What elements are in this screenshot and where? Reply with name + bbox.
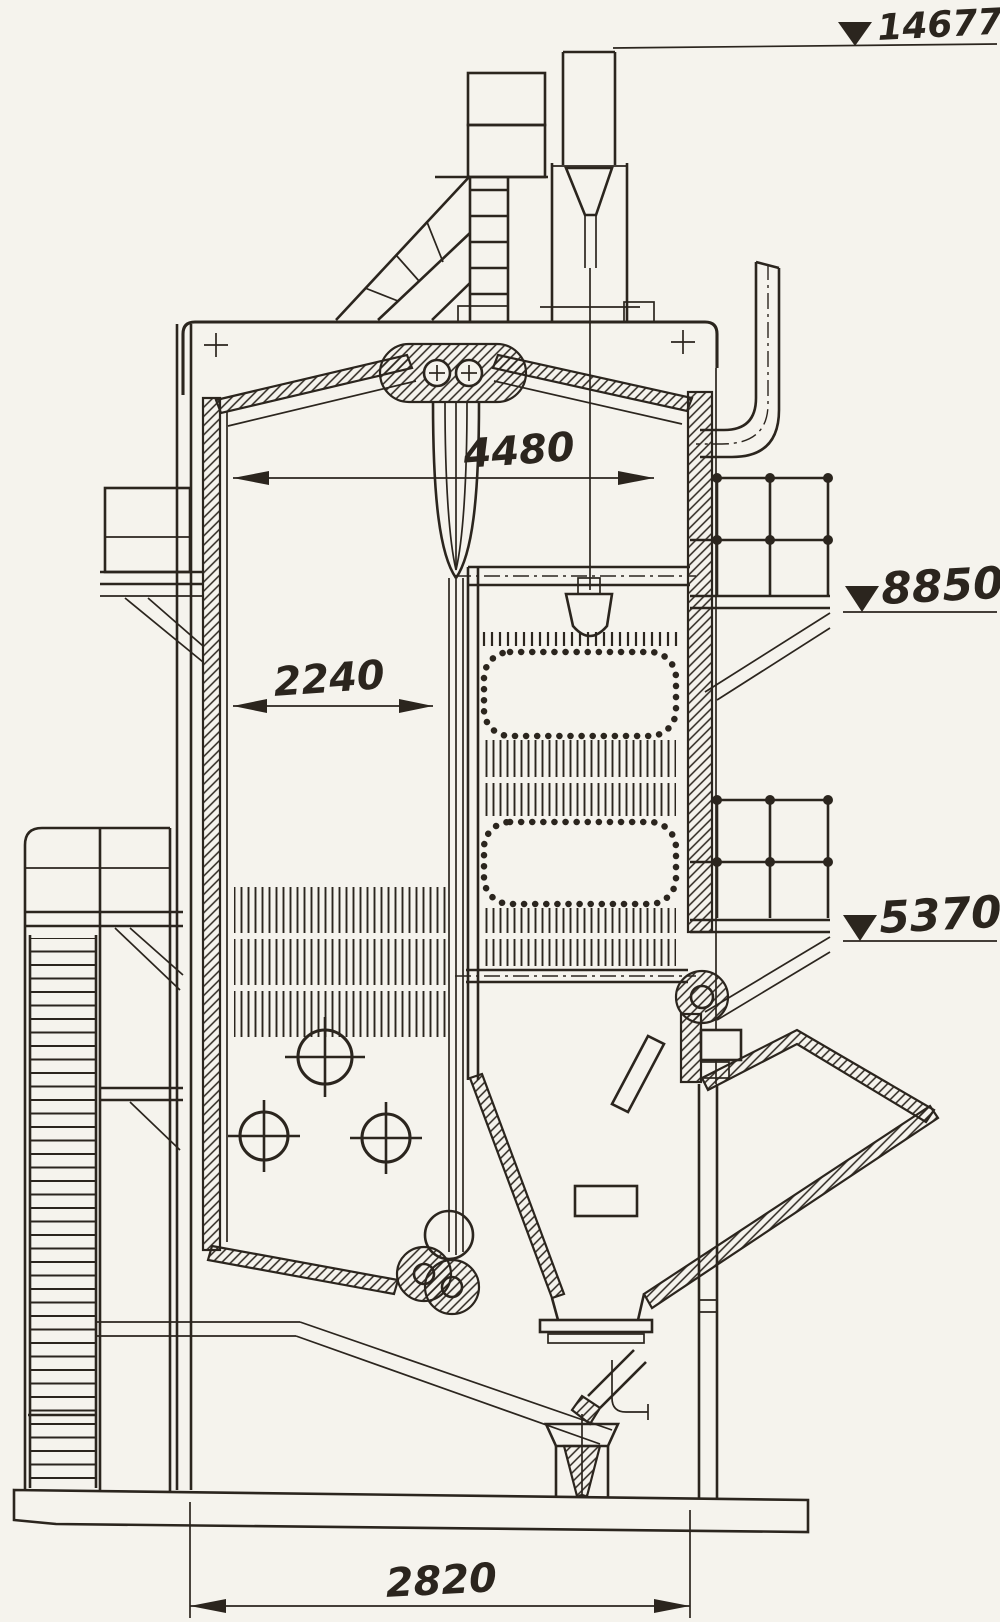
furnace-floor — [96, 1246, 612, 1444]
ladder-rungs — [30, 938, 96, 1486]
furnace-tube-bank — [234, 886, 446, 1038]
drawing-sheet: 14677 — [0, 0, 1000, 1622]
burner-port — [228, 1100, 300, 1172]
tube-bank-2 — [484, 908, 676, 966]
boiler-sectional-drawing: 14677 — [0, 0, 1000, 1622]
elevation-triangle-icon — [845, 586, 879, 612]
dim-arrow-icon — [618, 471, 654, 485]
ash-hopper — [470, 1030, 938, 1343]
corner-cross-mark-right — [671, 330, 695, 354]
elevation-label-5370: 5370 — [878, 887, 1000, 944]
support-column — [699, 1084, 717, 1502]
tube-bank-1 — [484, 740, 676, 816]
elevation-triangle-icon — [843, 915, 877, 941]
steam-drums — [380, 344, 526, 402]
dimension-2240: 2240 — [233, 652, 433, 713]
furnace-left-wall — [203, 398, 227, 1250]
dimension-label-2820: 2820 — [385, 1555, 499, 1607]
dimension-label-2240: 2240 — [272, 652, 386, 706]
burner-port — [350, 1102, 422, 1174]
boiler-right-wall — [688, 392, 712, 932]
dim-arrow-icon — [654, 1599, 690, 1613]
ladder-rungs — [470, 182, 508, 318]
elevation-triangle-icon — [838, 22, 872, 46]
access-stair — [336, 176, 470, 320]
burner-ports — [228, 1017, 422, 1174]
dim-arrow-icon — [233, 471, 269, 485]
furnace-ceiling-right — [493, 355, 692, 424]
convective-shaft — [455, 567, 696, 982]
hopper-outlet-flange — [540, 1320, 652, 1332]
elevation-mark-5370: 5370 — [843, 887, 1000, 944]
superheater-coil-outline-2 — [484, 822, 676, 904]
tube-tick-row — [482, 630, 678, 648]
dim-arrow-icon — [233, 699, 267, 713]
elevation-label-8850: 8850 — [880, 558, 1000, 615]
dim-arrow-icon — [190, 1599, 226, 1613]
hopper-access-port — [575, 1186, 637, 1216]
top-platform-boxes — [435, 73, 548, 322]
foundation-base — [14, 1490, 808, 1532]
left-platform-upper — [100, 488, 203, 662]
dimension-label-4480: 4480 — [461, 424, 576, 478]
left-stair-tower — [25, 828, 183, 1502]
downcomer-bundle — [433, 402, 479, 578]
distributor-funnel — [566, 578, 612, 636]
corner-cross-mark-left — [204, 333, 228, 357]
elevation-mark-8850: 8850 — [843, 558, 1000, 615]
elevation-label-14677: 14677 — [876, 1, 1000, 48]
superheater-coil-outline-1 — [484, 652, 676, 736]
elevation-mark-14677: 14677 — [613, 1, 1000, 48]
dim-arrow-icon — [399, 699, 433, 713]
partition-wall — [449, 567, 478, 1255]
hopper-baffle — [612, 1036, 664, 1112]
ash-chute — [572, 1350, 648, 1424]
lower-drum — [397, 1211, 479, 1314]
